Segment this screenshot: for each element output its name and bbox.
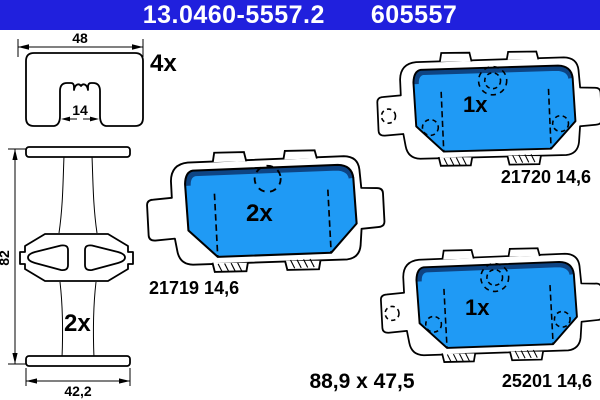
ean-number: 605557 [371, 1, 457, 30]
technical-drawing: 48 14 4x 82 [0, 0, 600, 400]
dim-arrow [12, 353, 17, 364]
overall-dimensions-label: 88,9 x 47,5 [309, 370, 414, 393]
clip-top-flange [26, 147, 130, 157]
clip-bottom-flange [26, 356, 130, 366]
part-number: 13.0460-5557.2 [143, 1, 325, 30]
clip-height-dim: 82 [0, 250, 12, 266]
clip-width-dim: 42,2 [64, 383, 91, 399]
catalog-image: 13.0460-5557.2 605557 48 14 4x [0, 0, 600, 400]
shim-qty-label: 4x [150, 50, 177, 77]
backing-top-tab [508, 247, 540, 257]
dim-arrow [90, 117, 99, 122]
pad-top-right-part-label: 21720 14,6 [501, 167, 591, 187]
brake-pad-top-right [375, 46, 600, 171]
friction-material [416, 259, 578, 351]
dim-arrow [26, 378, 37, 383]
dim-arrow [132, 44, 143, 49]
pad-top-right-qty-label: 1x [463, 92, 488, 117]
backing-top-tab [212, 151, 246, 163]
pad-bottom-right-qty-label: 1x [465, 295, 490, 320]
header-bar: 13.0460-5557.2 605557 [0, 0, 600, 30]
dim-arrow [61, 117, 70, 122]
dim-arrow [18, 44, 29, 49]
backing-top-tab [439, 52, 471, 63]
dim-arrow [119, 378, 130, 383]
backing-top-tab [283, 149, 317, 160]
backing-top-tab [506, 51, 538, 61]
shim-slot-dim: 14 [72, 102, 88, 118]
backing-top-tab [442, 249, 474, 260]
spring-clip-drawing: 82 2x 42,2 [0, 147, 133, 399]
shim-width-dim: 48 [72, 30, 88, 46]
clip-qty-label: 2x [64, 310, 91, 337]
pad-bottom-right-part-label: 25201 14,6 [502, 371, 592, 391]
shim-drawing: 48 14 4x [18, 30, 177, 126]
pad-middle-qty-label: 2x [246, 200, 273, 227]
dim-arrow [12, 149, 17, 160]
pad-middle-part-label: 21719 14,6 [149, 278, 239, 298]
friction-material [413, 63, 577, 154]
